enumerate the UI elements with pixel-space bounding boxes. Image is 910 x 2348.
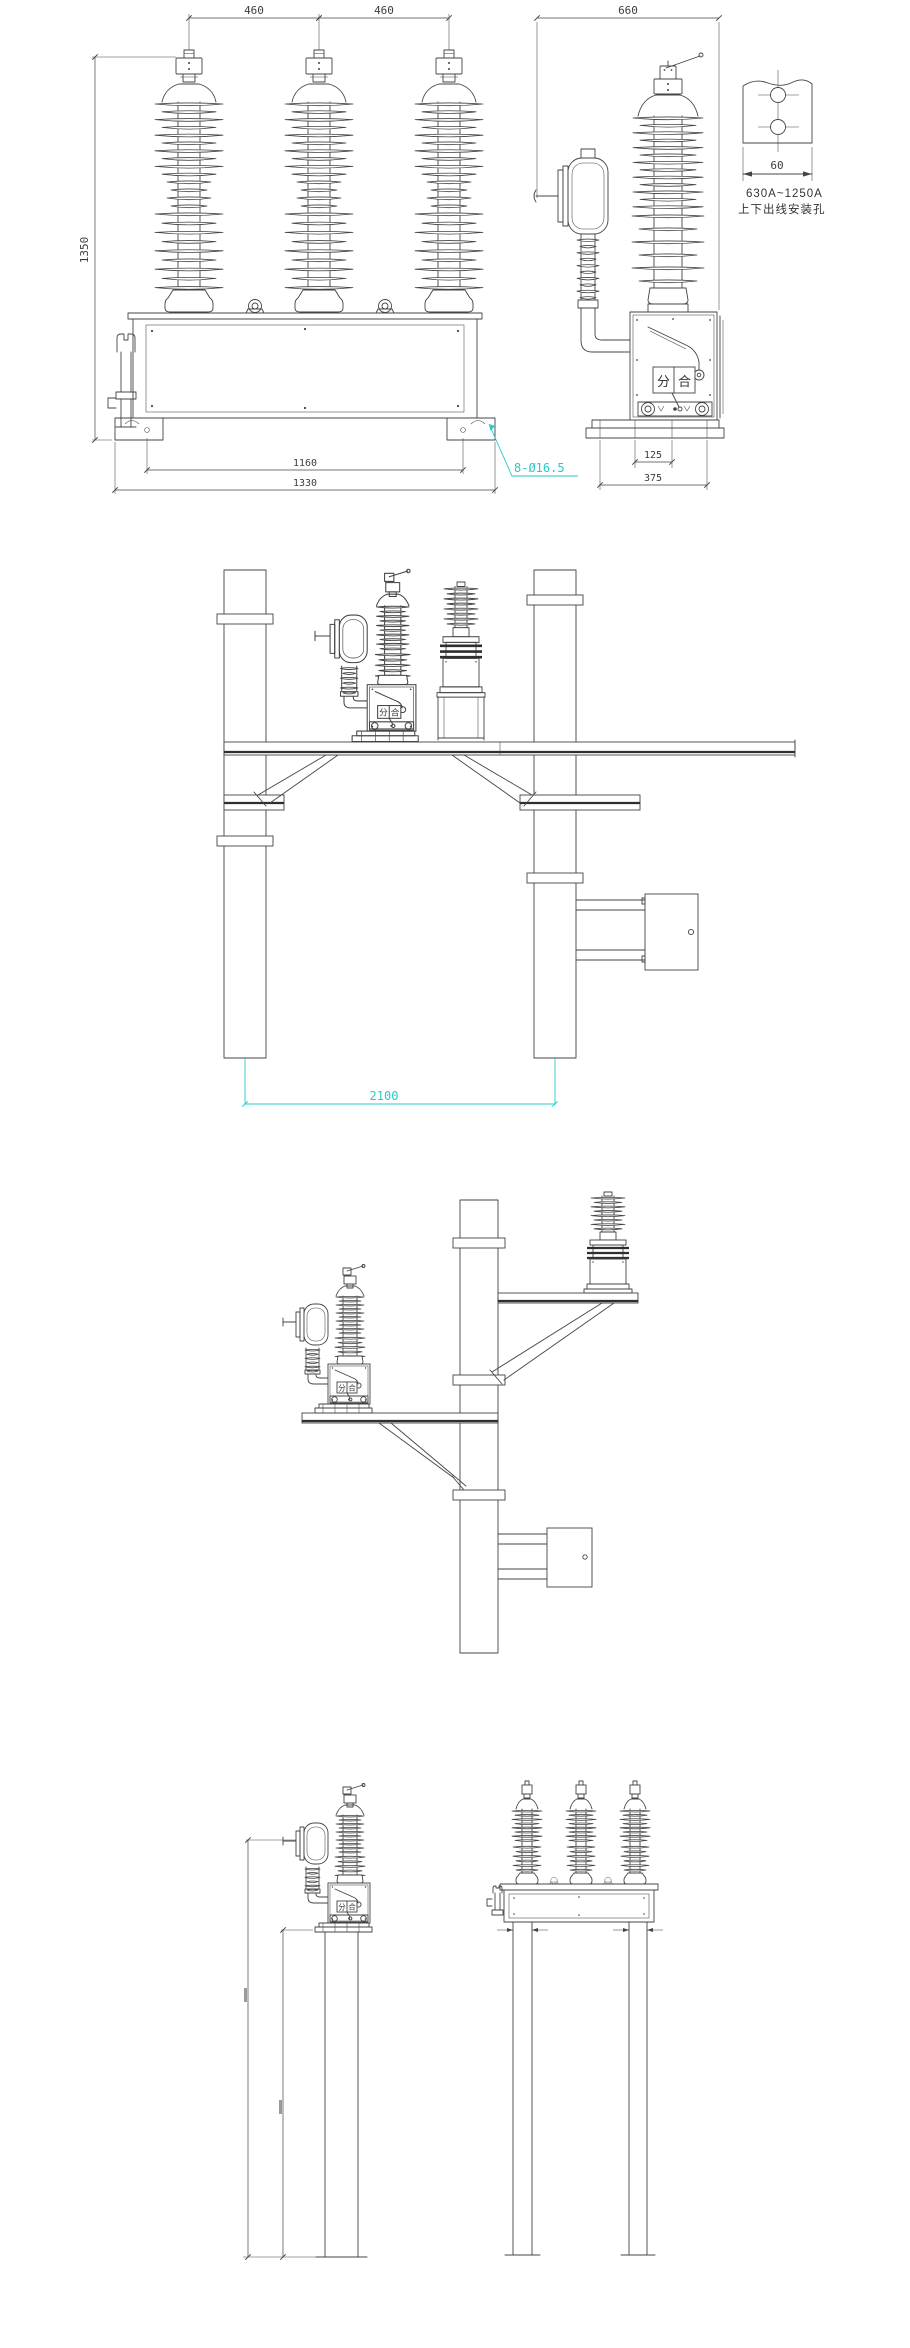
pole <box>325 1932 358 2257</box>
pole-right <box>534 570 576 1058</box>
tank-body <box>133 319 477 418</box>
lifting-lug <box>246 300 264 314</box>
pt-support <box>438 697 484 740</box>
terminal-detail: 60 630A~1250A 上下出线安装孔 <box>738 70 826 216</box>
dim-1330: 1330 <box>293 478 317 489</box>
tank-top-plate <box>500 1884 658 1890</box>
dim-1350: 1350 <box>78 237 91 264</box>
mounting-holes-note: 8-Ø16.5 <box>514 461 565 475</box>
lifting-lug <box>604 1877 613 1884</box>
pole-top-front-view <box>487 1781 663 2255</box>
foot-right <box>447 418 495 440</box>
pole-left <box>513 1922 532 2255</box>
pole-right <box>629 1922 647 2255</box>
lifting-lug <box>376 300 394 314</box>
dim-60: 60 <box>770 159 783 172</box>
terminal-hole-upper <box>771 88 786 103</box>
double-pole-view: 2100 <box>217 569 795 1104</box>
front-view: 460 460 1350 <box>78 4 578 494</box>
tank-body <box>504 1890 654 1922</box>
single-pole-view <box>283 1192 638 1653</box>
pole-top-side-view <box>243 1784 372 2258</box>
side-bracket <box>108 334 136 427</box>
current-transformer <box>534 149 630 352</box>
pole-width-dims <box>497 1928 663 1932</box>
detail-caption: 上下出线安装孔 <box>738 202 826 216</box>
lower-brace <box>379 1423 466 1490</box>
dim-1160: 1160 <box>293 458 317 469</box>
manual-handle <box>648 327 699 370</box>
drawing-canvas: 分 合 460 460 1350 <box>0 0 910 2348</box>
mechanism-box: 分 合 <box>630 312 723 420</box>
side-insulator <box>632 79 704 312</box>
dim-460-left: 460 <box>244 4 264 17</box>
lifting-lug <box>550 1877 559 1884</box>
illegible-dim-label <box>244 1988 247 2002</box>
pole-left <box>224 570 266 1058</box>
side-view: 660 <box>534 4 724 490</box>
indicator-close: 合 <box>678 374 691 389</box>
current-rating: 630A~1250A <box>746 188 823 200</box>
upper-brace <box>490 1303 614 1384</box>
lower-bands <box>224 795 640 810</box>
dim-660: 660 <box>618 4 638 17</box>
dim-375: 375 <box>644 473 662 484</box>
foot-left <box>115 418 163 440</box>
tank-top-plate <box>128 313 482 319</box>
dim-460-right: 460 <box>374 4 394 17</box>
tank-panel <box>146 325 464 412</box>
drawing-page: 分 合 460 460 1350 <box>0 0 910 2348</box>
operating-lever <box>660 53 703 79</box>
upper-arm <box>498 1293 638 1303</box>
control-box <box>498 1528 592 1587</box>
side-base-plate <box>586 420 724 438</box>
cross-arm <box>224 740 795 757</box>
control-box <box>576 894 698 970</box>
dim-2100: 2100 <box>370 1089 399 1103</box>
left-arm <box>302 1413 498 1423</box>
indicator-open: 分 <box>657 374 670 389</box>
pole <box>460 1200 498 1653</box>
dim-125: 125 <box>644 450 662 461</box>
illegible-dim-label <box>279 2100 282 2114</box>
terminal-hole-lower <box>771 120 786 135</box>
